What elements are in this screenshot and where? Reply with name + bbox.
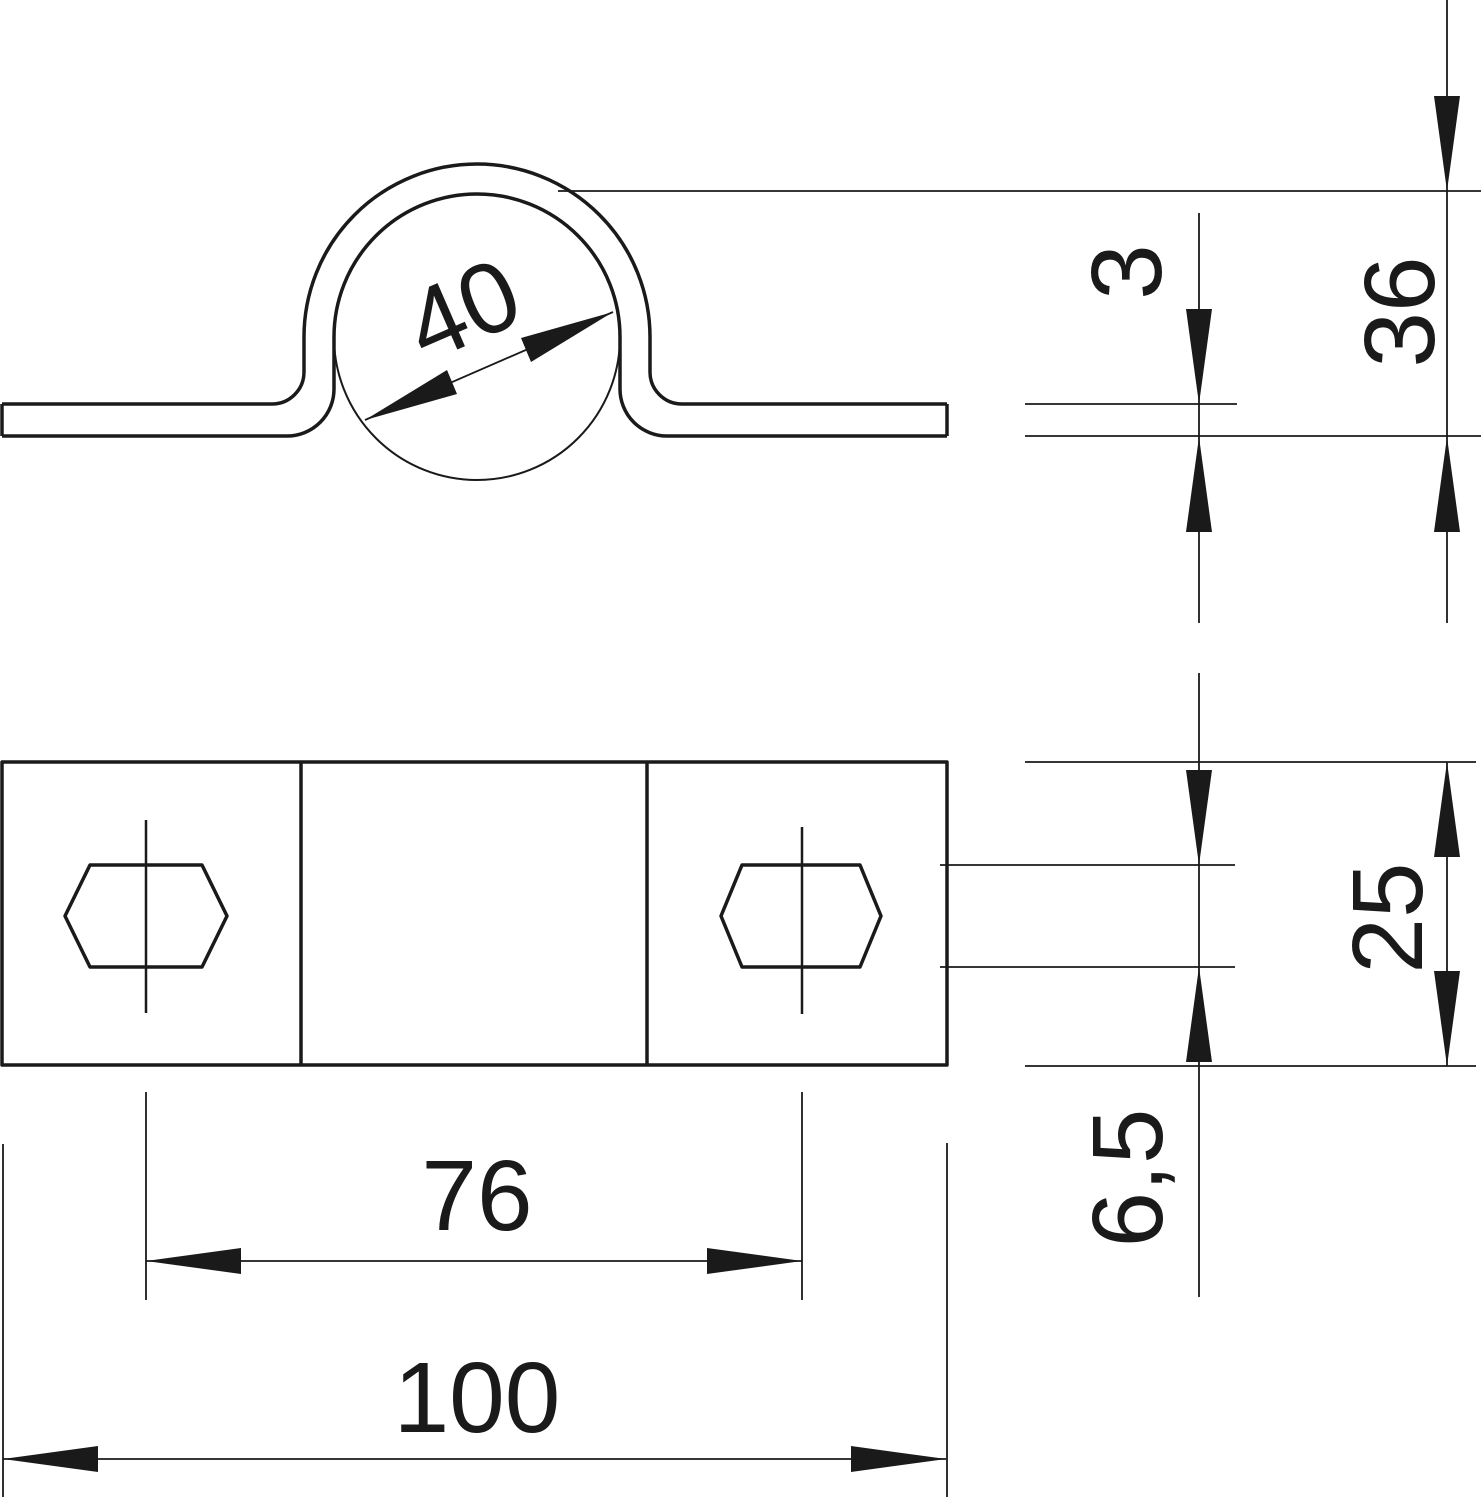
dim-pipe-diameter-label: 40 (390, 236, 537, 383)
dim-plate-width: 25 (1025, 762, 1476, 1066)
technical-drawing-page: 40 36 3 25 (0, 0, 1481, 1500)
arrowhead-up (1186, 437, 1212, 532)
arrowhead-up (1186, 967, 1212, 1062)
arrowhead-right (851, 1446, 946, 1472)
dim-hole-spacing-label: 76 (421, 1140, 532, 1252)
dim-plate-width-label: 25 (1332, 862, 1444, 973)
arrowhead-left (146, 1248, 241, 1274)
arrowhead-down (1434, 971, 1460, 1066)
arrowhead-up (1434, 437, 1460, 532)
dim-material-thickness: 3 (1025, 213, 1237, 623)
plan-view (2, 762, 947, 1065)
arrowhead-right (707, 1248, 802, 1274)
dim-hole-width-label: 6,5 (1072, 1108, 1184, 1247)
arrowhead-down (1186, 309, 1212, 404)
plan-view-plate-outline (2, 762, 947, 1065)
arrowhead-down (1434, 96, 1460, 191)
dim-hole-spacing: 76 (146, 1092, 802, 1300)
dim-overall-length-label: 100 (394, 1342, 561, 1454)
dim-pipe-diameter: 40 (365, 236, 613, 420)
dim-overall-height: 36 (558, 0, 1481, 623)
dim-hole-width: 6,5 (940, 673, 1235, 1297)
dim-material-thickness-label: 3 (1071, 244, 1183, 300)
dimension-drawing-canvas: 40 36 3 25 (0, 0, 1481, 1500)
dim-overall-height-label: 36 (1344, 256, 1456, 367)
arrowhead-left (3, 1446, 98, 1472)
arrowhead-down (1186, 770, 1212, 865)
arrowhead-up (1434, 762, 1460, 857)
